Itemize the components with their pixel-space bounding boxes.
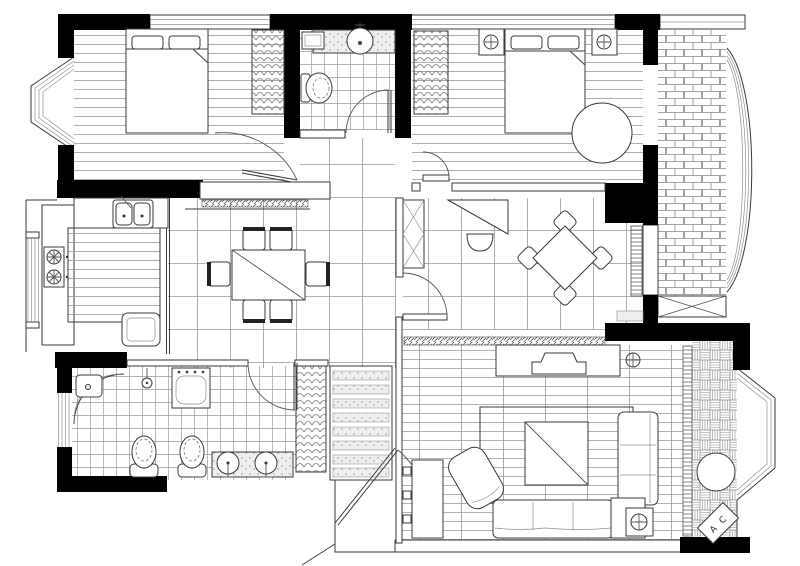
living-north-wall-hatch — [404, 337, 605, 345]
dining-table — [232, 250, 305, 300]
double-sink-icon — [113, 196, 153, 228]
side-table-se — [626, 508, 653, 536]
sofa-bottom — [493, 498, 645, 538]
kitchen-island — [68, 228, 160, 322]
balcony-bottom-floor — [692, 340, 737, 537]
balcony-top-floor — [658, 30, 726, 296]
kitchen — [42, 196, 168, 346]
sliding-window-living-balcony — [683, 346, 692, 536]
wardrobe-bedroom-1 — [252, 30, 284, 114]
window-bathroom-left — [59, 393, 70, 447]
lamp-symbol-ne — [626, 353, 640, 367]
bay-window-top-left — [31, 57, 74, 151]
bay-window-top-right — [727, 48, 752, 292]
nightstand-left — [479, 29, 504, 55]
window-balcony-top — [660, 15, 745, 29]
floor-plan-page: A C — [0, 0, 800, 566]
round-chair — [572, 103, 632, 163]
window-x-brace-balcony — [658, 296, 726, 317]
small-label-box — [617, 311, 643, 321]
wardrobe-bedroom-2 — [414, 31, 448, 114]
hall-sideboard — [185, 182, 330, 209]
vanity-double-sink — [212, 452, 293, 477]
toilet-1-icon — [130, 436, 158, 477]
bathroom-top-south-wall — [300, 130, 345, 138]
bookshelf — [403, 200, 424, 268]
living-west-wall — [396, 317, 402, 543]
bedroom-2-south-wall — [452, 183, 605, 191]
bed-2 — [505, 29, 585, 133]
sideboard — [200, 182, 330, 199]
toilet-2-icon — [178, 436, 206, 477]
bay-window-bottom-right — [737, 368, 775, 537]
sofa-right — [618, 412, 658, 505]
tv-cabinet — [496, 345, 620, 376]
sideboard-hatch — [202, 200, 308, 207]
window-study-east — [631, 225, 658, 296]
nightstand-right — [592, 29, 617, 55]
floor-plan: A C — [0, 0, 800, 566]
study-west-wall — [396, 198, 403, 277]
coffee-table — [525, 422, 588, 485]
toilet-top-icon — [301, 73, 332, 103]
window-top-bedroom-2 — [411, 15, 615, 29]
wardrobe-strip — [296, 366, 326, 472]
bed-1 — [126, 29, 208, 133]
bathroom-bottom-north-wall — [127, 360, 248, 366]
window-top-bedroom-1 — [150, 15, 270, 29]
washing-machine — [172, 368, 210, 408]
round-table — [697, 453, 735, 491]
